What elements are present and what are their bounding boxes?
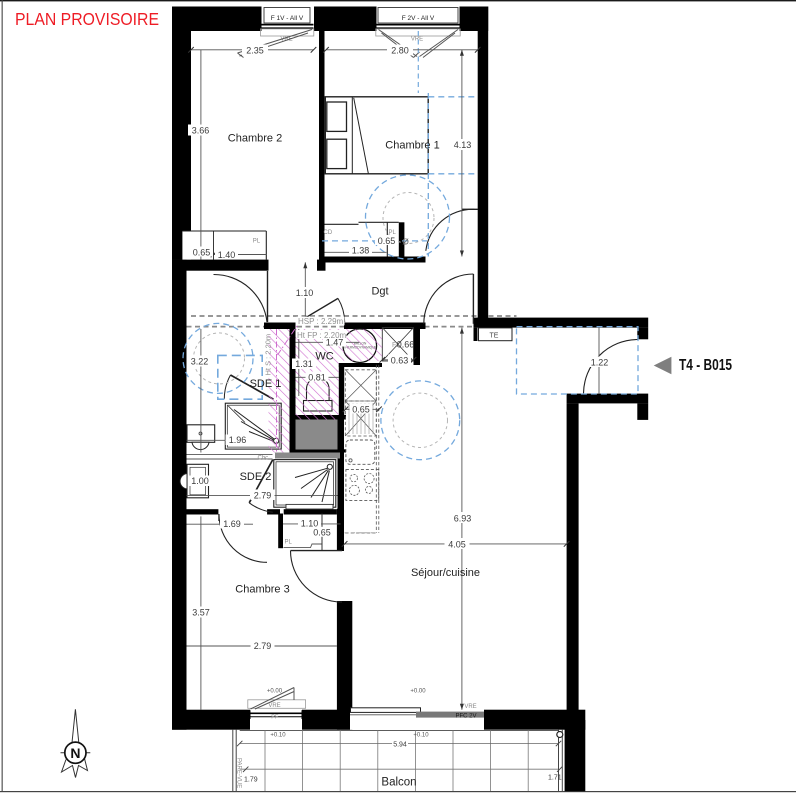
svg-text:HSP : 2.29m: HSP : 2.29m xyxy=(298,317,344,326)
svg-text:Dgt: Dgt xyxy=(371,286,388,298)
svg-text:SDE 1: SDE 1 xyxy=(250,378,282,390)
svg-text:Ø: Ø xyxy=(402,237,409,247)
svg-text:+0.10: +0.10 xyxy=(413,733,429,739)
svg-text:0.65: 0.65 xyxy=(313,527,331,537)
svg-text:Ht FP : 2.20m: Ht FP : 2.20m xyxy=(297,331,347,340)
svg-text:PL: PL xyxy=(285,540,293,546)
svg-text:T4 - B015: T4 - B015 xyxy=(679,357,732,374)
svg-text:1.22: 1.22 xyxy=(591,357,609,367)
svg-text:VRE: VRE xyxy=(411,37,423,43)
svg-text:CD: CD xyxy=(324,230,333,236)
svg-text:1.40: 1.40 xyxy=(218,250,236,260)
svg-text:PF: PF xyxy=(271,715,279,721)
svg-text:VRE: VRE xyxy=(268,703,280,709)
svg-text:1.31: 1.31 xyxy=(295,359,313,369)
svg-text:+0.10: +0.10 xyxy=(270,733,286,739)
svg-text:Balcon: Balcon xyxy=(381,777,416,789)
svg-text:2.79: 2.79 xyxy=(254,641,272,651)
svg-text:Chambre 2: Chambre 2 xyxy=(228,133,282,145)
svg-text:1.00: 1.00 xyxy=(191,476,209,486)
svg-text:1.96: 1.96 xyxy=(229,435,247,445)
svg-text:Séjour/cuisine: Séjour/cuisine xyxy=(411,567,480,579)
svg-text:VRE: VRE xyxy=(464,704,476,710)
svg-text:0.65: 0.65 xyxy=(378,236,396,246)
svg-text:Cbc: Cbc xyxy=(258,455,269,461)
svg-text:0.65: 0.65 xyxy=(352,404,370,414)
svg-text:5.94: 5.94 xyxy=(393,742,407,749)
svg-text:PFC 2V: PFC 2V xyxy=(455,714,476,720)
svg-text:WC: WC xyxy=(315,351,333,363)
svg-text:6.93: 6.93 xyxy=(454,513,472,523)
svg-text:1.38: 1.38 xyxy=(352,245,370,255)
svg-text:TE: TE xyxy=(490,333,499,340)
svg-text:0.81: 0.81 xyxy=(308,372,326,382)
svg-text:1.71: 1.71 xyxy=(548,775,562,782)
svg-text:4.13: 4.13 xyxy=(454,140,472,150)
svg-text:0.63: 0.63 xyxy=(391,355,409,365)
svg-text:F 2V - All V: F 2V - All V xyxy=(402,15,435,22)
svg-text:PARE-VUE: PARE-VUE xyxy=(236,758,242,788)
svg-text:3.22: 3.22 xyxy=(191,356,209,366)
svg-text:3.57: 3.57 xyxy=(192,608,210,618)
svg-text:0.65: 0.65 xyxy=(193,247,211,257)
svg-text:1.79: 1.79 xyxy=(244,777,258,784)
svg-text:2.80: 2.80 xyxy=(391,45,409,55)
svg-text:4.05: 4.05 xyxy=(448,539,466,549)
svg-text:3.66: 3.66 xyxy=(192,126,210,136)
svg-text:1.10: 1.10 xyxy=(296,288,314,298)
svg-text:N: N xyxy=(70,745,80,761)
svg-text:1.69: 1.69 xyxy=(223,519,241,529)
svg-text:+0.00: +0.00 xyxy=(267,689,283,695)
svg-text:0.66: 0.66 xyxy=(397,339,415,349)
svg-text:Ht S : 2.20m: Ht S : 2.20m xyxy=(264,334,273,376)
svg-text:2.79: 2.79 xyxy=(254,490,272,500)
svg-text:Chambre 1: Chambre 1 xyxy=(385,139,439,151)
svg-text:2.35: 2.35 xyxy=(246,45,264,55)
svg-text:+0.00: +0.00 xyxy=(410,689,426,695)
svg-text:PLAN PROVISOIRE: PLAN PROVISOIRE xyxy=(15,9,159,29)
svg-text:PL: PL xyxy=(389,230,397,236)
svg-text:Chambre 3: Chambre 3 xyxy=(235,584,289,596)
svg-text:PL: PL xyxy=(253,239,261,245)
svg-text:SDE 2: SDE 2 xyxy=(240,471,272,483)
svg-text:F 1V - All V: F 1V - All V xyxy=(271,15,304,22)
